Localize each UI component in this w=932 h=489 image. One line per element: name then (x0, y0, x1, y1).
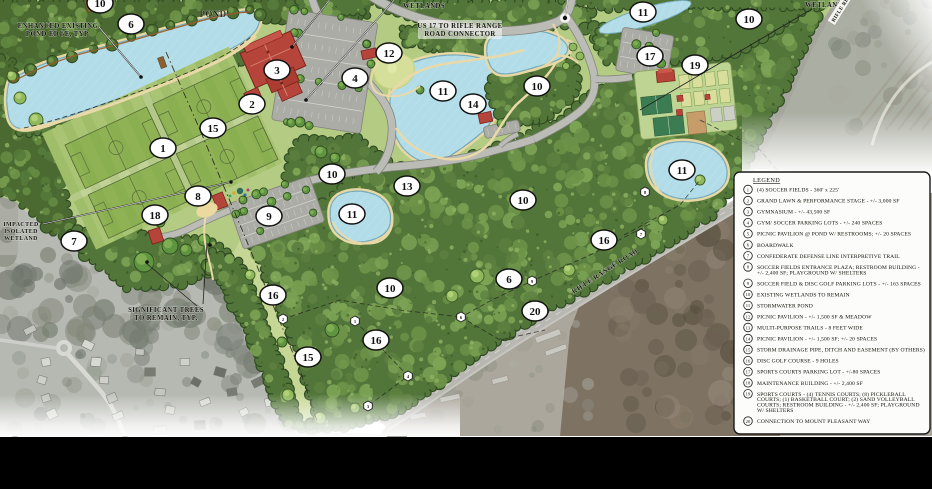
svg-text:PICNIC PAVILION @ POND W/ REST: PICNIC PAVILION @ POND W/ RESTROOMS; +/-… (757, 232, 911, 238)
svg-text:TO REMAIN, TYP.: TO REMAIN, TYP. (134, 315, 198, 322)
svg-text:LEGEND: LEGEND (753, 177, 780, 184)
svg-text:SPORTS COURTS PARKING LOT - +/: SPORTS COURTS PARKING LOT - +/-80 SPACES (757, 370, 880, 376)
svg-text:6: 6 (128, 19, 134, 31)
svg-text:7: 7 (71, 236, 77, 248)
svg-text:13: 13 (402, 181, 414, 193)
svg-text:STORMWATER POND: STORMWATER POND (757, 303, 813, 309)
svg-text:10: 10 (95, 0, 107, 10)
svg-text:PICNIC PAVILION - +/- 1,500 SF: PICNIC PAVILION - +/- 1,500 SF; +/- 20 S… (757, 337, 877, 343)
svg-text:16: 16 (746, 359, 751, 364)
svg-text:10: 10 (518, 195, 530, 207)
svg-text:PICNIC PAVILION - +/- 1,500 SF: PICNIC PAVILION - +/- 1,500 SF & MEADOW (757, 315, 872, 321)
svg-text:STORM DRAINAGE PIPE, DITCH AND: STORM DRAINAGE PIPE, DITCH AND EASEMENT … (757, 347, 925, 354)
svg-text:8: 8 (195, 191, 201, 203)
svg-text:EXISTING WETLANDS TO REMAIN: EXISTING WETLANDS TO REMAIN (757, 292, 850, 298)
svg-text:GYM/ SOCCER PARKING LOTS - +/-: GYM/ SOCCER PARKING LOTS - +/- 240 SPACE… (757, 221, 882, 227)
svg-text:16: 16 (599, 235, 611, 247)
svg-text:WETLANDS: WETLANDS (403, 3, 445, 10)
svg-text:18: 18 (150, 210, 162, 222)
svg-text:18: 18 (746, 381, 751, 386)
svg-text:SIGNIFICANT TREES: SIGNIFICANT TREES (128, 307, 204, 314)
svg-text:MAINTENANCE BUILDING - +/- 2,4: MAINTENANCE BUILDING - +/- 2,400 SF (757, 381, 863, 387)
svg-text:MULTI-PURPOSE TRAILS - 8 FEET: MULTI-PURPOSE TRAILS - 8 FEET WIDE (757, 326, 863, 332)
svg-text:9: 9 (266, 211, 272, 223)
svg-text:WETLAND: WETLAND (4, 236, 38, 242)
svg-text:4: 4 (352, 73, 358, 85)
svg-text:SOCCER FIELD & DISC GOLF PARKI: SOCCER FIELD & DISC GOLF PARKING LOTS - … (757, 281, 921, 287)
svg-text:2: 2 (249, 99, 255, 111)
svg-text:13: 13 (746, 325, 751, 330)
svg-text:20: 20 (746, 419, 751, 424)
svg-text:12: 12 (746, 314, 751, 319)
svg-text:15: 15 (746, 347, 751, 352)
svg-text:IMPACTED: IMPACTED (3, 222, 39, 228)
svg-text:US 17 TO RIFLE RANGE: US 17 TO RIFLE RANGE (417, 23, 502, 30)
svg-text:20: 20 (530, 306, 542, 318)
svg-text:3: 3 (274, 65, 280, 77)
svg-text:10: 10 (532, 81, 544, 93)
svg-text:14: 14 (468, 99, 480, 111)
svg-text:11: 11 (746, 303, 751, 308)
svg-text:10: 10 (744, 14, 756, 26)
svg-text:19: 19 (746, 392, 751, 397)
svg-text:CONFEDERATE DEFENSE LINE INTER: CONFEDERATE DEFENSE LINE INTERPRETIVE TR… (757, 254, 900, 260)
svg-text:11: 11 (677, 165, 687, 177)
svg-text:(4) SOCCER FIELDS - 360' x 225: (4) SOCCER FIELDS - 360' x 225' (757, 187, 839, 194)
svg-text:BOARDWALK: BOARDWALK (757, 243, 794, 249)
svg-text:11: 11 (347, 209, 357, 221)
svg-text:11: 11 (438, 86, 448, 98)
svg-text:14: 14 (746, 336, 751, 341)
svg-text:ENHANCED EXISTING: ENHANCED EXISTING (18, 23, 99, 30)
svg-text:10: 10 (385, 283, 397, 295)
svg-text:POND: POND (199, 9, 226, 19)
svg-text:12: 12 (384, 48, 396, 60)
svg-text:16: 16 (371, 335, 383, 347)
svg-text:GYMNASIUM - +/- 43,500 SF: GYMNASIUM - +/- 43,500 SF (757, 210, 830, 216)
svg-text:10: 10 (327, 169, 339, 181)
svg-text:ROAD CONNECTOR: ROAD CONNECTOR (424, 31, 495, 38)
svg-text:15: 15 (208, 123, 220, 135)
svg-text:+/- 2,400 SF; PLAYGROUND W/ SH: +/- 2,400 SF; PLAYGROUND W/ SHELTERS (757, 270, 866, 276)
svg-text:1: 1 (160, 143, 166, 155)
svg-text:19: 19 (690, 60, 702, 72)
svg-text:GRAND LAWN & PERFORMANCE STAGE: GRAND LAWN & PERFORMANCE STAGE - +/- 3,0… (757, 199, 899, 205)
svg-text:16: 16 (268, 290, 280, 302)
svg-text:11: 11 (638, 7, 648, 19)
svg-text:17: 17 (645, 51, 657, 63)
svg-text:15: 15 (303, 352, 315, 364)
svg-text:17: 17 (746, 370, 751, 375)
svg-text:ISOLATED: ISOLATED (4, 229, 38, 235)
svg-text:POND EDGE, TYP.: POND EDGE, TYP. (26, 31, 90, 38)
svg-text:DISC GOLF COURSE - 9 HOLES: DISC GOLF COURSE - 9 HOLES (757, 359, 839, 365)
svg-text:CONNECTION TO MOUNT PLEASANT W: CONNECTION TO MOUNT PLEASANT WAY (757, 419, 870, 425)
svg-text:W/ SHELTERS: W/ SHELTERS (757, 408, 793, 414)
svg-text:6: 6 (506, 274, 512, 286)
svg-text:10: 10 (746, 292, 751, 297)
